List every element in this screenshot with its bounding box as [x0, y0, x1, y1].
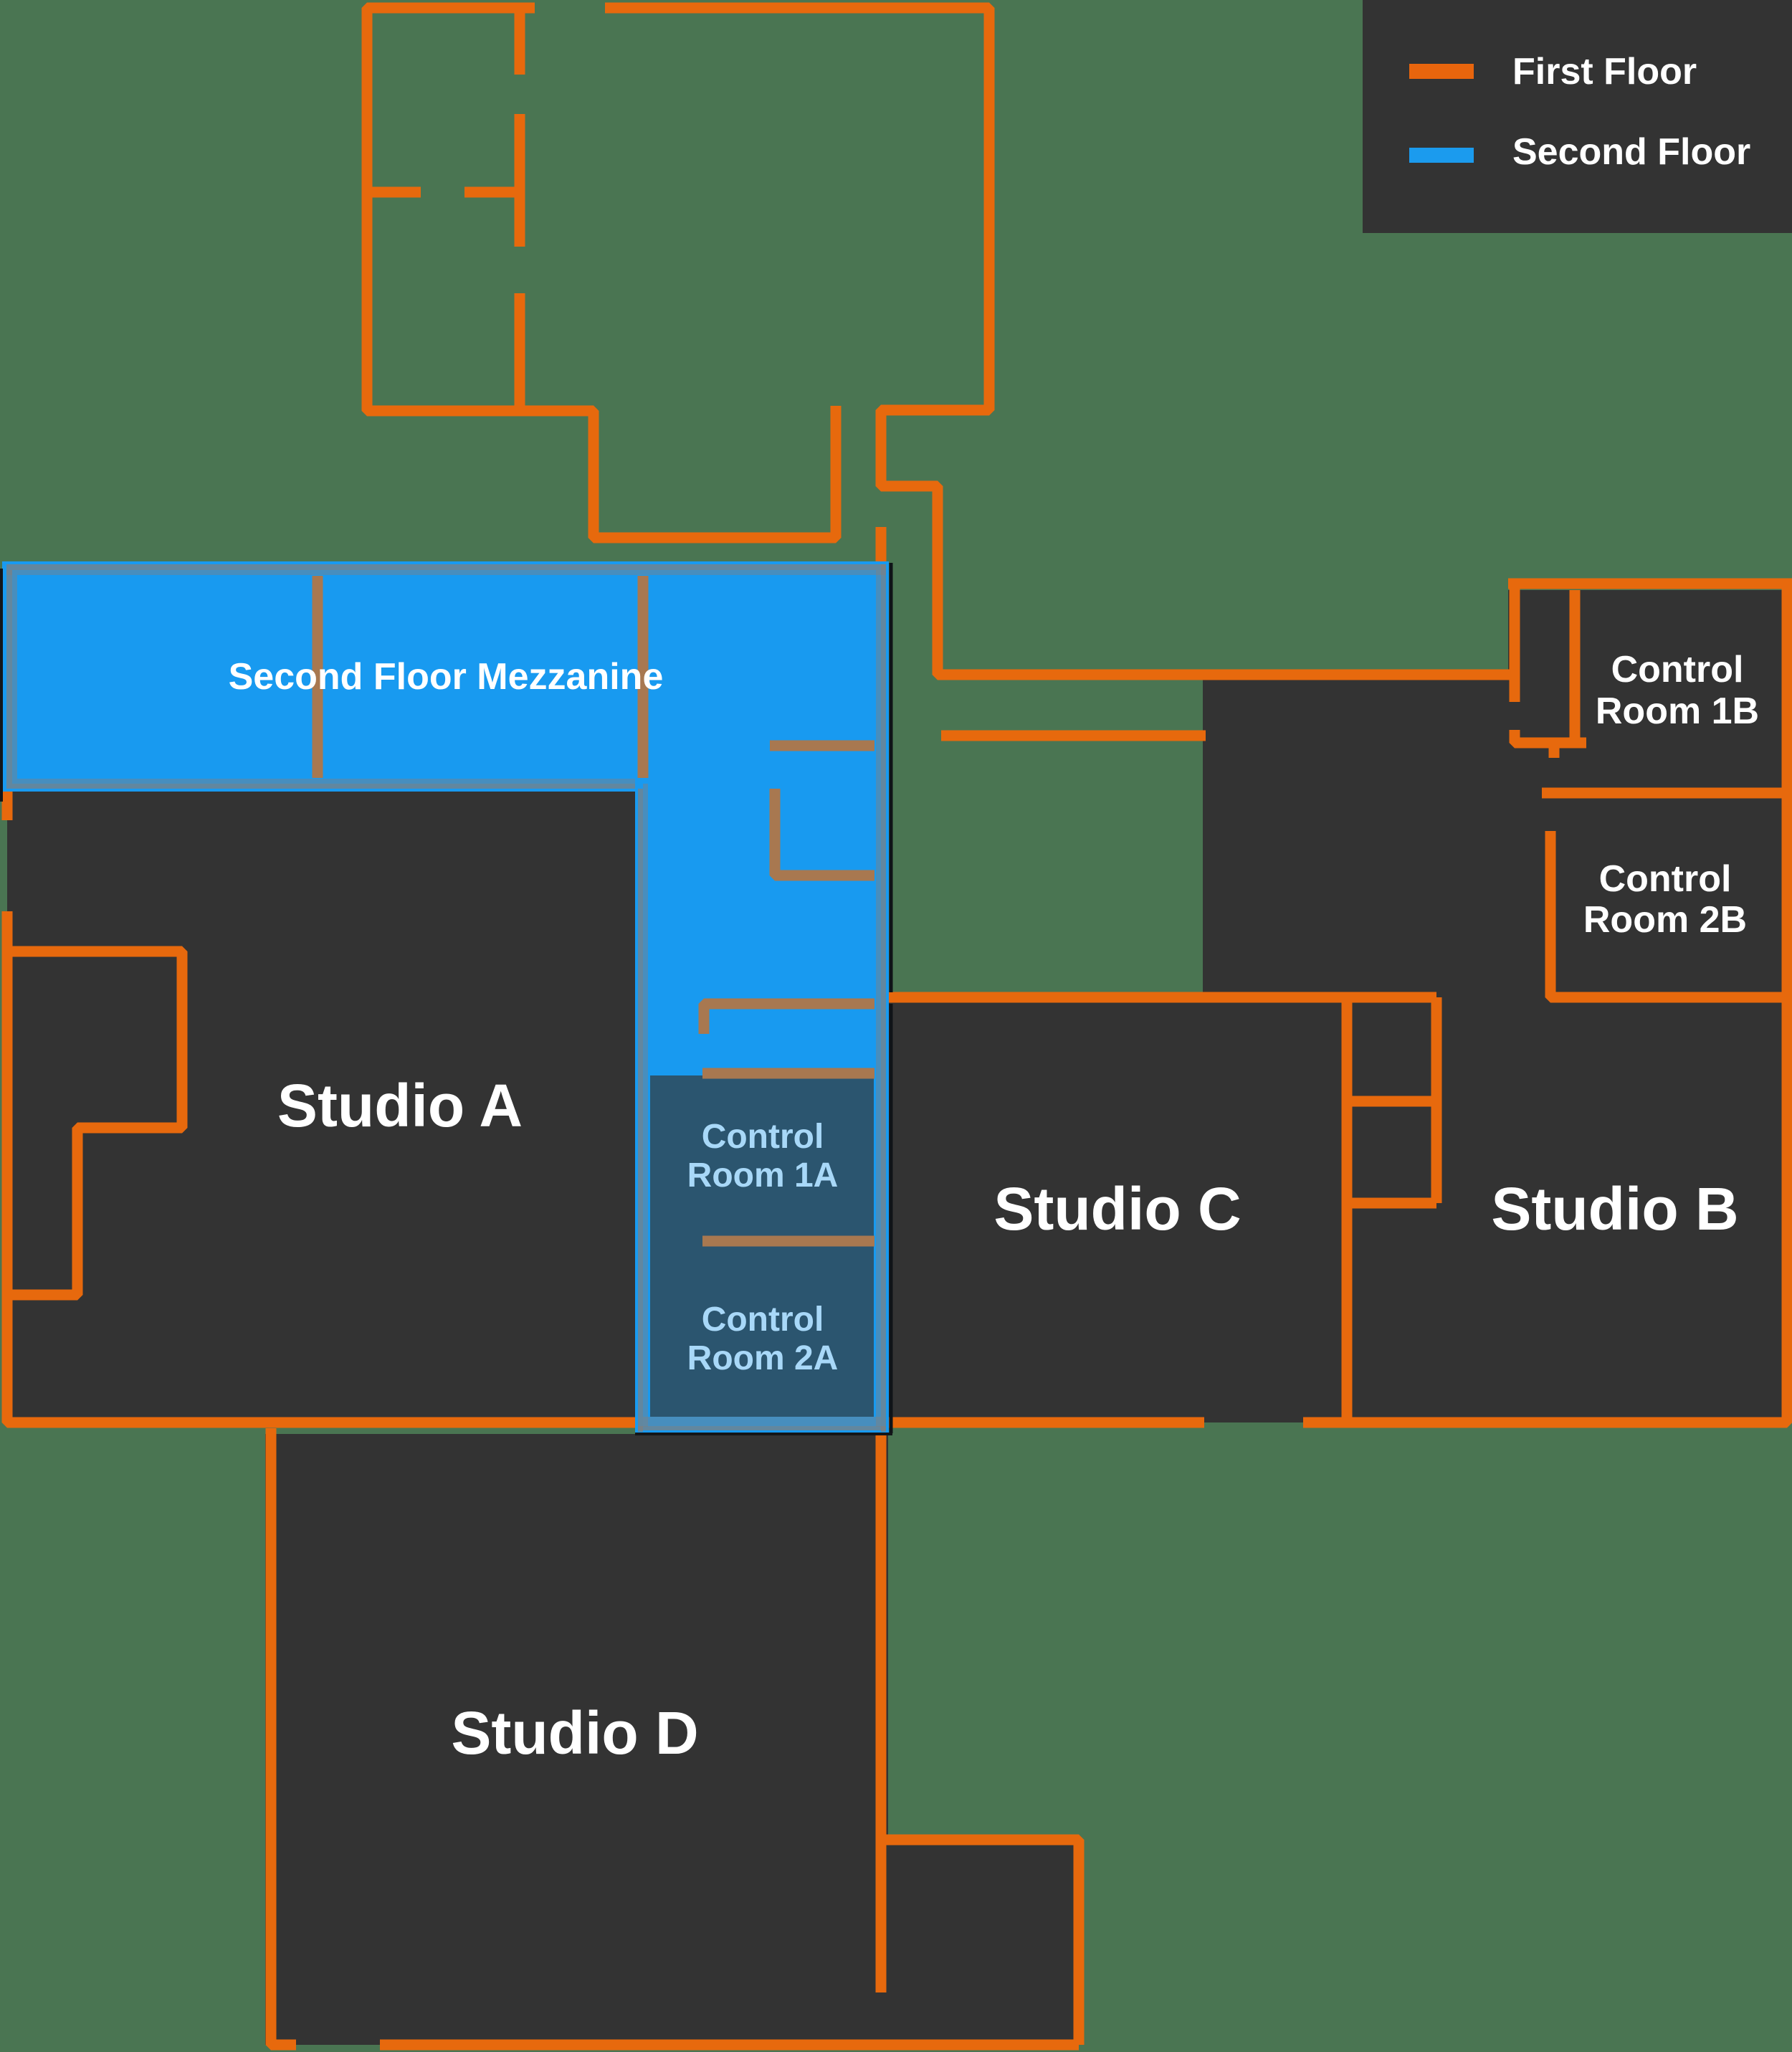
svg-text:Second Floor: Second Floor — [1512, 131, 1750, 173]
svg-text:Control: Control — [702, 1301, 824, 1339]
svg-text:Control: Control — [702, 1118, 824, 1156]
svg-text:Room 1B: Room 1B — [1596, 690, 1759, 732]
svg-text:Room 2A: Room 2A — [687, 1339, 839, 1377]
svg-text:Studio B: Studio B — [1491, 1175, 1738, 1243]
svg-text:Studio C: Studio C — [993, 1175, 1241, 1243]
svg-text:First Floor: First Floor — [1512, 51, 1697, 92]
svg-text:Room 2B: Room 2B — [1583, 899, 1747, 941]
svg-text:Control: Control — [1599, 858, 1732, 900]
svg-text:Studio A: Studio A — [277, 1072, 523, 1139]
svg-text:Studio D: Studio D — [451, 1699, 698, 1767]
svg-text:Room 1A: Room 1A — [687, 1156, 839, 1194]
svg-text:Control: Control — [1611, 649, 1744, 690]
svg-text:Second Floor Mezzanine: Second Floor Mezzanine — [229, 656, 664, 698]
